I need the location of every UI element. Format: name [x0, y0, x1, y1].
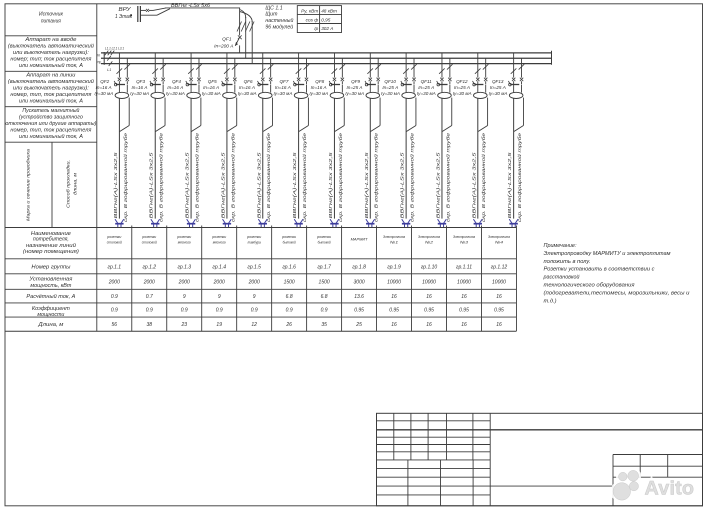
svg-text:Iу=30 мА: Iу=30 мА [238, 91, 257, 96]
svg-text:скр. В гофрированной трубе: скр. В гофрированной трубе [123, 132, 128, 222]
svg-text:Ру, кВт: Ру, кВт [301, 8, 318, 13]
svg-text:9: 9 [218, 294, 221, 300]
svg-text:скр. В гофрированной трубе: скр. В гофрированной трубе [230, 132, 235, 222]
svg-text:QF10: QF10 [384, 79, 396, 84]
svg-text:гр.1.3: гр.1.3 [177, 264, 191, 270]
svg-text:Расчётный ток, А: Расчётный ток, А [26, 293, 76, 300]
svg-text:ВВГнг(А)-LSх 3х2,5: ВВГнг(А)-LSх 3х2,5 [507, 151, 512, 218]
svg-text:0.9: 0.9 [146, 308, 153, 314]
svg-text:гр.1.10: гр.1.10 [421, 264, 438, 270]
svg-text:QF1: QF1 [222, 37, 232, 43]
svg-text:(номер помещения): (номер помещения) [23, 249, 79, 255]
svg-text:13.6: 13.6 [354, 294, 364, 300]
svg-text:ВВГнг(А)-LSх 3х2,5: ВВГнг(А)-LSх 3х2,5 [256, 151, 261, 218]
svg-text:ВВГнг -LSх 5х6: ВВГнг -LSх 5х6 [171, 3, 210, 9]
svg-text:(подогреватели,тестомесы, моро: (подогреватели,тестомесы, морозильники, … [544, 290, 691, 296]
svg-text:мощность, кВт: мощность, кВт [30, 283, 71, 289]
svg-text:Iу=30 мА: Iу=30 мА [381, 91, 400, 96]
svg-text:настенный: настенный [265, 17, 293, 24]
svg-text:№2: №2 [425, 239, 434, 244]
svg-text:ВВГнг(А)-LSх 3х2,5: ВВГнг(А)-LSх 3х2,5 [328, 151, 333, 218]
svg-text:расстановкой: расстановкой [543, 274, 581, 281]
svg-text:2000: 2000 [248, 280, 260, 286]
svg-text:25: 25 [355, 322, 362, 328]
svg-text:1500: 1500 [319, 280, 330, 286]
svg-text:48 кВт: 48 кВт [321, 8, 337, 13]
svg-text:гр.1.5: гр.1.5 [247, 264, 261, 270]
svg-text:2000: 2000 [213, 280, 225, 286]
svg-text:Iу=30 мА: Iу=30 мА [309, 91, 328, 96]
svg-text:In=16 А: In=16 А [203, 85, 219, 90]
svg-text:QF5: QF5 [208, 79, 217, 84]
svg-text:9: 9 [253, 294, 256, 300]
svg-text:скр. В гофрированной трубе: скр. В гофрированной трубе [266, 132, 271, 222]
svg-text:гр.1.7: гр.1.7 [317, 264, 331, 270]
svg-text:питания: питания [41, 18, 61, 24]
svg-text:2000: 2000 [108, 280, 120, 286]
svg-text:Пускатель магнитный: Пускатель магнитный [22, 107, 79, 114]
svg-text:столовой: столовой [142, 239, 158, 244]
svg-text:скр. В гофрированной трубе: скр. В гофрированной трубе [159, 132, 164, 222]
svg-text:Iу=30 мА: Iу=30 мА [417, 91, 436, 96]
svg-text:ВВГнг(А)-LSх 3х2,5: ВВГнг(А)-LSх 3х2,5 [471, 151, 476, 218]
svg-text:скр. В гофрированной трубе: скр. В гофрированной трубе [338, 132, 343, 222]
svg-text:Avito: Avito [645, 478, 695, 500]
svg-text:ВРУ: ВРУ [119, 7, 132, 13]
svg-text:12: 12 [251, 322, 257, 328]
svg-text:гр.1.8: гр.1.8 [352, 264, 366, 270]
svg-text:или номинальный ток, А: или номинальный ток, А [19, 97, 84, 104]
svg-text:3000: 3000 [354, 280, 365, 286]
svg-text:0,95: 0,95 [321, 17, 331, 22]
svg-text:In=25 А: In=25 А [347, 85, 363, 90]
svg-text:(выключатель автоматический: (выключатель автоматический [8, 43, 94, 50]
svg-text:Источник: Источник [39, 11, 64, 17]
svg-text:ВВГнг(А)-LSх 3х2,5: ВВГнг(А)-LSх 3х2,5 [113, 151, 118, 218]
svg-text:In=25 А: In=25 А [454, 85, 470, 90]
svg-text:гр.1.1: гр.1.1 [108, 264, 122, 270]
svg-text:ВВГнг(А)-LSх 3х2,5: ВВГнг(А)-LSх 3х2,5 [400, 151, 405, 218]
svg-text:скр. В гофрированной трубе: скр. В гофрированной трубе [481, 132, 486, 222]
svg-text:0.9: 0.9 [251, 308, 258, 314]
svg-text:ВВГнг(А)-LSх 3х2,5: ВВГнг(А)-LSх 3х2,5 [149, 151, 154, 218]
svg-text:Коэффициент: Коэффициент [32, 306, 70, 312]
svg-text:(устройство защитного: (устройство защитного [19, 113, 83, 120]
svg-text:номер, тип, ток расцепителя: номер, тип, ток расцепителя [10, 92, 91, 98]
svg-text:QF7: QF7 [279, 79, 288, 84]
svg-text:QF11: QF11 [421, 79, 433, 84]
svg-text:0.95: 0.95 [424, 308, 434, 314]
svg-text:0.7: 0.7 [146, 294, 153, 300]
svg-text:1500: 1500 [284, 280, 295, 286]
svg-text:(выключатель автоматический: (выключатель автоматический [8, 78, 94, 85]
svg-text:мясного: мясного [178, 239, 192, 244]
svg-text:соs ф: соs ф [306, 17, 319, 22]
svg-text:т.д.): т.д.) [544, 298, 557, 304]
svg-text:In=16 А: In=16 А [131, 85, 147, 90]
svg-text:номер; тип; ток расцепителя: номер; тип; ток расцепителя [10, 57, 91, 63]
svg-text:Розетки установить в соответст: Розетки установить в соответствии с [544, 267, 655, 273]
svg-text:Электропроводку МАРМИТУ и элек: Электропроводку МАРМИТУ и электроплитам [544, 251, 671, 257]
svg-text:N: N [97, 54, 100, 58]
svg-text:56: 56 [112, 322, 118, 328]
svg-text:гр.1.2: гр.1.2 [142, 264, 156, 270]
svg-text:19: 19 [216, 322, 222, 328]
svg-text:QF8: QF8 [315, 79, 324, 84]
svg-text:Аппарат на линии: Аппарат на линии [25, 72, 75, 78]
svg-text:или выключатель нагрузки):: или выключатель нагрузки): [13, 50, 90, 56]
svg-text:Iу=30 мА: Iу=30 мА [489, 91, 508, 96]
svg-text:QF9: QF9 [351, 79, 360, 84]
svg-text:Примечание:: Примечание: [544, 243, 577, 249]
svg-text:столовой: столовой [107, 239, 123, 244]
svg-text:QF3: QF3 [136, 79, 145, 84]
svg-text:QF2: QF2 [100, 79, 109, 84]
svg-text:6.8: 6.8 [321, 294, 328, 300]
svg-text:16: 16 [496, 294, 502, 300]
svg-text:0.95: 0.95 [494, 308, 504, 314]
svg-text:Аппарат на вводе: Аппарат на вводе [24, 37, 76, 43]
svg-text:L1.1 L2.1 L3.1: L1.1 L2.1 L3.1 [105, 47, 124, 51]
svg-text:0.9: 0.9 [111, 294, 118, 300]
svg-text:16: 16 [461, 294, 467, 300]
svg-text:ВВГнг(А)-LSх 3х2,5: ВВГнг(А)-LSх 3х2,5 [220, 151, 225, 218]
svg-text:или номинальный ток, А: или номинальный ток, А [19, 133, 84, 140]
svg-text:Iу=30 мА: Iу=30 мА [166, 91, 185, 96]
svg-text:16: 16 [426, 322, 432, 328]
svg-text:Длина, м: Длина, м [37, 322, 64, 328]
svg-text:скр. В гофрированной трубе: скр. В гофрированной трубе [194, 132, 199, 222]
svg-text:QF12: QF12 [456, 79, 468, 84]
svg-text:Iу=30 мА: Iу=30 мА [202, 91, 221, 96]
svg-text:Iу=30 мА: Iу=30 мА [130, 91, 149, 96]
svg-text:Установленная: Установленная [29, 277, 72, 283]
svg-text:скр. В гофрированной трубе: скр. В гофрированной трубе [445, 132, 450, 222]
svg-text:Iу=30 мА: Iу=30 мА [274, 91, 293, 96]
svg-text:In=16 А: In=16 А [239, 85, 255, 90]
svg-text:2000: 2000 [178, 280, 190, 286]
svg-text:бытовой: бытовой [318, 239, 332, 244]
svg-text:26: 26 [285, 322, 292, 328]
svg-text:Iу=30 мА: Iу=30 мА [453, 91, 472, 96]
svg-text:скр. В гофрированной трубе: скр. В гофрированной трубе [374, 132, 379, 222]
svg-text:№4: №4 [495, 239, 504, 244]
svg-text:ВВГнг(А)-LSх 3х2,5: ВВГнг(А)-LSх 3х2,5 [185, 151, 190, 218]
svg-text:L1: L1 [107, 68, 111, 72]
svg-text:отключения или другие аппараты: отключения или другие аппараты) [5, 121, 96, 127]
svg-text:ВВГнг(А)-LSх 3х2,5: ВВГнг(А)-LSх 3х2,5 [364, 151, 369, 218]
svg-text:гр.1.11: гр.1.11 [456, 264, 472, 270]
svg-text:23: 23 [180, 322, 187, 328]
svg-text:Марка и сечение проводника: Марка и сечение проводника [26, 148, 31, 221]
svg-text:номер, тип, ток расцепителя: номер, тип, ток расцепителя [10, 127, 91, 133]
svg-text:тамбура: тамбура [248, 239, 262, 244]
svg-text:QF6: QF6 [244, 79, 253, 84]
svg-text:302 А: 302 А [321, 26, 333, 31]
svg-text:0.95: 0.95 [389, 308, 399, 314]
svg-text:гр.1.4: гр.1.4 [212, 264, 226, 270]
svg-text:Щит: Щит [265, 12, 278, 18]
svg-text:In=16 А: In=16 А [167, 85, 183, 90]
svg-text:35: 35 [321, 322, 327, 328]
svg-text:Iр: Iр [314, 26, 318, 31]
svg-text:QF13: QF13 [492, 79, 504, 84]
svg-text:16: 16 [426, 294, 432, 300]
svg-text:Номер группы: Номер группы [31, 264, 70, 270]
svg-text:38: 38 [146, 322, 152, 328]
svg-text:Iу=30 мА: Iу=30 мА [94, 91, 113, 96]
svg-text:0.9: 0.9 [321, 308, 328, 314]
svg-text:мясного: мясного [213, 239, 227, 244]
svg-text:или номинальный ток, А: или номинальный ток, А [19, 62, 84, 69]
svg-text:0.95: 0.95 [459, 308, 469, 314]
svg-text:In=200 А: In=200 А [214, 44, 233, 50]
svg-text:In=16 А: In=16 А [311, 85, 327, 90]
svg-text:16: 16 [496, 322, 502, 328]
svg-text:10000: 10000 [492, 280, 506, 286]
svg-text:10000: 10000 [422, 280, 436, 286]
svg-text:2000: 2000 [143, 280, 155, 286]
svg-text:бытовой: бытовой [283, 239, 297, 244]
svg-text:МАРМИТ: МАРМИТ [351, 237, 369, 242]
svg-text:или выключатель нагрузки):: или выключатель нагрузки): [13, 85, 90, 91]
svg-text:ВВГнг(А)-LSх 3х2,5: ВВГнг(А)-LSх 3х2,5 [435, 151, 440, 218]
svg-text:гр.1.12: гр.1.12 [491, 264, 508, 270]
svg-text:ЩС 1.1: ЩС 1.1 [265, 5, 282, 11]
svg-text:Способ прокладки,: Способ прокладки, [66, 160, 71, 208]
svg-text:назначение линий: назначение линий [26, 242, 76, 249]
svg-text:положить в полу.: положить в полу. [544, 259, 591, 265]
svg-text:скр. В гофрированной трубе: скр. В гофрированной трубе [410, 132, 415, 222]
svg-text:96 модулей: 96 модулей [265, 24, 293, 31]
svg-text:технологического оборудования: технологического оборудования [544, 283, 635, 289]
svg-text:9: 9 [183, 294, 186, 300]
svg-text:№3: №3 [460, 239, 469, 244]
svg-text:16: 16 [391, 322, 397, 328]
svg-text:0.95: 0.95 [354, 308, 364, 314]
svg-text:длина, м: длина, м [72, 173, 77, 195]
svg-text:потребителя,: потребителя, [33, 237, 69, 243]
svg-text:In=25 А: In=25 А [382, 85, 398, 90]
svg-text:гр.1.6: гр.1.6 [282, 264, 296, 270]
svg-text:№1: №1 [390, 239, 398, 244]
svg-text:Iу=30 мА: Iу=30 мА [345, 91, 364, 96]
svg-text:1 Этаж: 1 Этаж [115, 14, 132, 20]
svg-text:гр.1.9: гр.1.9 [387, 264, 401, 270]
svg-text:In=16 А: In=16 А [96, 85, 112, 90]
svg-text:16: 16 [391, 294, 397, 300]
svg-text:16: 16 [461, 322, 467, 328]
svg-text:скр. В гофрированной трубе: скр. В гофрированной трубе [517, 132, 522, 222]
svg-text:PE: PE [96, 60, 101, 64]
svg-text:6.8: 6.8 [286, 294, 293, 300]
svg-text:QF4: QF4 [172, 79, 181, 84]
svg-text:ВВГнг(А)-LSх 3х2,5: ВВГнг(А)-LSх 3х2,5 [292, 151, 297, 218]
svg-text:In=25 А: In=25 А [490, 85, 506, 90]
svg-text:мощности: мощности [37, 312, 64, 318]
svg-text:In=16 А: In=16 А [275, 85, 291, 90]
svg-text:скр. В гофрированной трубе: скр. В гофрированной трубе [302, 132, 307, 222]
svg-text:0.9: 0.9 [286, 308, 293, 314]
svg-text:0.9: 0.9 [181, 308, 188, 314]
svg-text:10000: 10000 [387, 280, 401, 286]
svg-text:0.9: 0.9 [216, 308, 223, 314]
svg-text:0.9: 0.9 [111, 308, 118, 314]
svg-text:In=25 А: In=25 А [418, 85, 434, 90]
svg-text:10000: 10000 [457, 280, 471, 286]
